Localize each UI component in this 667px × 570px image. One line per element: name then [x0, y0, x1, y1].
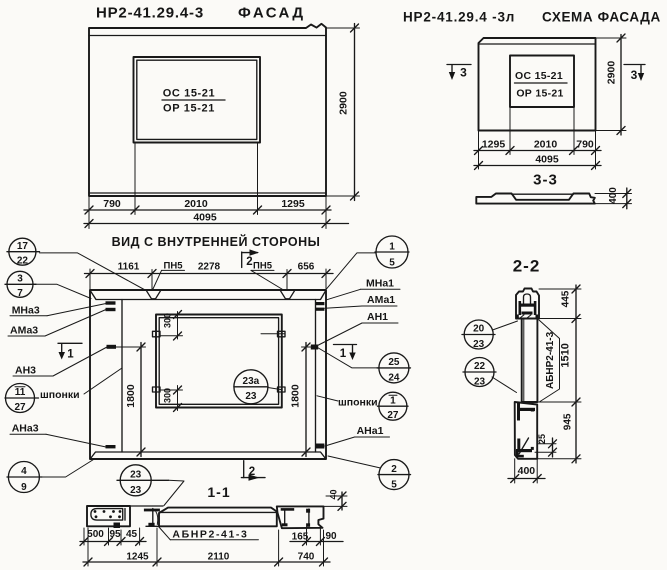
- svg-text:2900: 2900: [338, 91, 350, 115]
- svg-text:1510: 1510: [560, 343, 572, 367]
- svg-text:1245: 1245: [126, 552, 149, 563]
- svg-text:СХЕМА ФАСАДА: СХЕМА ФАСАДА: [542, 10, 661, 25]
- svg-text:2110: 2110: [208, 552, 230, 563]
- svg-text:ВИД С ВНУТРЕННЕЙ СТОРОНЫ: ВИД С ВНУТРЕННЕЙ СТОРОНЫ: [112, 234, 321, 249]
- svg-text:25: 25: [388, 357, 400, 368]
- svg-text:95: 95: [109, 529, 121, 540]
- svg-text:22: 22: [17, 256, 29, 267]
- svg-text:АНа1: АНа1: [357, 425, 384, 437]
- svg-text:23: 23: [473, 339, 485, 350]
- svg-text:МНа1: МНа1: [366, 278, 394, 290]
- svg-text:2: 2: [246, 256, 252, 268]
- svg-text:МНа3: МНа3: [12, 304, 40, 316]
- svg-text:300: 300: [163, 313, 173, 328]
- svg-text:шпонки: шпонки: [338, 397, 378, 409]
- svg-text:22: 22: [474, 361, 486, 372]
- svg-text:24: 24: [388, 373, 400, 384]
- svg-text:7: 7: [17, 288, 23, 299]
- svg-text:40: 40: [329, 489, 339, 499]
- svg-text:27: 27: [387, 410, 399, 421]
- svg-text:4: 4: [21, 466, 27, 477]
- svg-text:790: 790: [103, 198, 121, 210]
- svg-text:2-2: 2-2: [513, 257, 541, 276]
- svg-text:23: 23: [474, 377, 486, 388]
- svg-text:5: 5: [389, 258, 395, 269]
- svg-text:4095: 4095: [193, 212, 217, 224]
- svg-text:3-3: 3-3: [533, 172, 558, 189]
- svg-text:400: 400: [608, 187, 619, 204]
- svg-text:ОС 15-21: ОС 15-21: [515, 70, 563, 82]
- svg-text:945: 945: [563, 413, 574, 430]
- svg-text:90: 90: [325, 531, 337, 542]
- svg-text:45: 45: [126, 529, 138, 540]
- svg-text:1800: 1800: [125, 384, 137, 408]
- svg-text:27: 27: [14, 402, 26, 413]
- svg-text:25: 25: [537, 434, 547, 444]
- svg-text:ОР 15-21: ОР 15-21: [163, 103, 215, 115]
- svg-text:790: 790: [576, 139, 594, 151]
- svg-text:2: 2: [249, 466, 255, 478]
- svg-text:23а: 23а: [243, 376, 260, 387]
- svg-text:1-1: 1-1: [207, 484, 230, 500]
- svg-text:3: 3: [460, 66, 467, 80]
- svg-text:2010: 2010: [184, 198, 208, 210]
- svg-text:АМа1: АМа1: [367, 294, 395, 306]
- svg-text:1295: 1295: [482, 139, 506, 151]
- svg-text:ПН5: ПН5: [253, 261, 273, 272]
- svg-text:400: 400: [518, 465, 536, 477]
- svg-text:23: 23: [130, 470, 142, 481]
- svg-text:500: 500: [87, 529, 104, 540]
- svg-text:9: 9: [21, 482, 27, 493]
- svg-text:1: 1: [390, 396, 396, 407]
- svg-text:шпонки: шпонки: [40, 389, 80, 401]
- svg-text:АБНР2-41-3: АБНР2-41-3: [545, 331, 556, 389]
- svg-text:НР2-41.29.4-3: НР2-41.29.4-3: [96, 5, 204, 22]
- svg-text:740: 740: [298, 552, 315, 563]
- svg-text:1161: 1161: [118, 262, 140, 273]
- svg-text:АН1: АН1: [367, 311, 388, 323]
- svg-text:1: 1: [67, 349, 74, 361]
- svg-text:1295: 1295: [281, 198, 305, 210]
- svg-text:ОС 15-21: ОС 15-21: [163, 88, 216, 100]
- svg-text:3: 3: [631, 68, 638, 82]
- svg-text:23: 23: [130, 485, 142, 496]
- svg-text:3: 3: [17, 274, 23, 285]
- svg-text:2010: 2010: [534, 139, 558, 151]
- svg-text:АНа3: АНа3: [12, 423, 39, 435]
- svg-text:11: 11: [15, 387, 26, 398]
- svg-text:20: 20: [473, 324, 485, 335]
- svg-text:2900: 2900: [606, 61, 618, 85]
- svg-text:ОР 15-21: ОР 15-21: [516, 88, 563, 100]
- svg-text:НР2-41.29.4 -3л: НР2-41.29.4 -3л: [403, 10, 515, 25]
- svg-text:23: 23: [245, 391, 257, 402]
- svg-text:1800: 1800: [290, 384, 302, 408]
- svg-text:445: 445: [560, 290, 571, 307]
- svg-text:АН3: АН3: [15, 365, 36, 377]
- svg-text:2: 2: [391, 464, 397, 475]
- svg-text:5: 5: [391, 480, 397, 491]
- svg-text:300: 300: [163, 388, 173, 403]
- svg-text:17: 17: [17, 241, 29, 252]
- svg-text:1: 1: [389, 242, 395, 253]
- svg-text:2278: 2278: [198, 262, 221, 273]
- svg-text:АМа3: АМа3: [10, 325, 38, 337]
- svg-text:ФАСАД: ФАСАД: [238, 5, 305, 22]
- svg-text:ПН5: ПН5: [164, 261, 184, 272]
- svg-text:1: 1: [340, 348, 347, 360]
- svg-text:656: 656: [298, 262, 315, 273]
- svg-text:АБНР2-41-3: АБНР2-41-3: [172, 529, 248, 541]
- svg-text:4095: 4095: [535, 154, 559, 166]
